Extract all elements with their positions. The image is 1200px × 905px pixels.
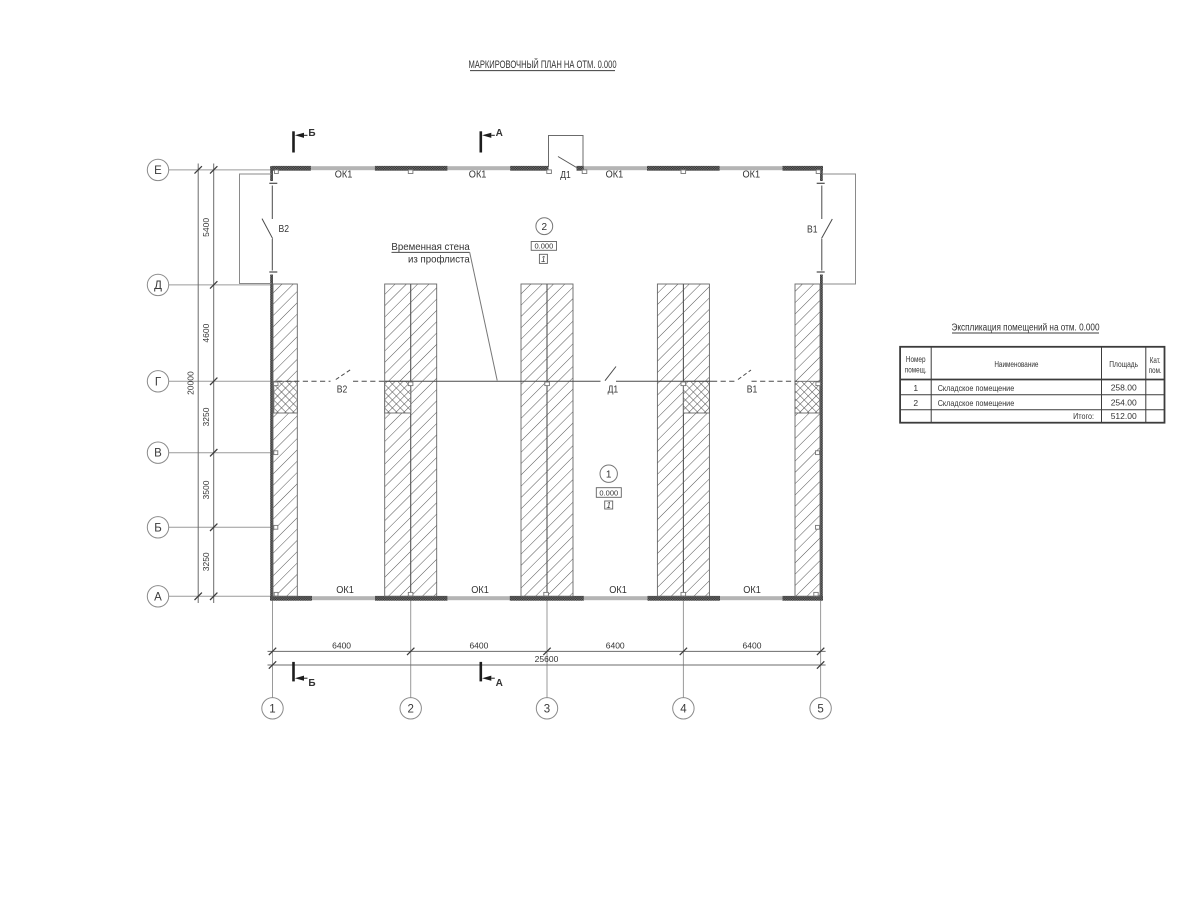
svg-text:А: А: [496, 678, 503, 689]
svg-text:В2: В2: [279, 223, 290, 235]
svg-text:В1: В1: [807, 224, 818, 236]
svg-text:1: 1: [606, 470, 612, 481]
svg-text:Экспликация помещений на отм.: Экспликация помещений на отм. 0.000: [951, 320, 1099, 332]
svg-text:Б: Б: [154, 522, 162, 534]
svg-text:254.00: 254.00: [1111, 398, 1137, 408]
svg-text:А: А: [154, 591, 162, 603]
svg-text:1: 1: [269, 703, 275, 715]
svg-text:В1: В1: [747, 384, 758, 396]
svg-text:Д: Д: [154, 280, 162, 292]
svg-text:Итого:: Итого:: [1073, 412, 1094, 422]
svg-text:А: А: [496, 128, 503, 139]
svg-text:1: 1: [913, 383, 918, 393]
svg-text:Кат.: Кат.: [1150, 356, 1161, 365]
svg-text:Б: Б: [308, 678, 315, 689]
svg-text:МАРКИРОВОЧНЫЙ ПЛАН НА ОТМ. 0.0: МАРКИРОВОЧНЫЙ ПЛАН НА ОТМ. 0.000: [468, 58, 616, 72]
svg-text:3250: 3250: [201, 407, 211, 426]
svg-text:ОК1: ОК1: [609, 584, 627, 595]
svg-text:из профлиста: из профлиста: [408, 253, 470, 265]
svg-text:ОК1: ОК1: [743, 584, 761, 595]
svg-text:3500: 3500: [201, 480, 211, 499]
svg-text:25600: 25600: [535, 654, 559, 664]
svg-text:2: 2: [542, 222, 548, 233]
svg-text:ОК1: ОК1: [469, 169, 487, 180]
svg-text:помещ.: помещ.: [905, 365, 927, 375]
svg-text:4600: 4600: [201, 323, 211, 342]
svg-text:ОК1: ОК1: [335, 169, 353, 180]
svg-text:4: 4: [680, 703, 687, 715]
svg-text:Наименование: Наименование: [994, 359, 1038, 369]
svg-text:ОК1: ОК1: [742, 169, 760, 180]
svg-text:В: В: [154, 448, 162, 460]
svg-text:Д1: Д1: [608, 384, 619, 396]
svg-text:6400: 6400: [606, 640, 625, 650]
svg-text:ОК1: ОК1: [606, 169, 624, 180]
svg-text:512.00: 512.00: [1111, 411, 1137, 421]
svg-text:В2: В2: [337, 384, 348, 396]
svg-text:Д1: Д1: [560, 169, 570, 180]
svg-text:2: 2: [913, 398, 918, 408]
svg-text:1: 1: [541, 255, 545, 264]
svg-text:20000: 20000: [186, 371, 196, 395]
svg-text:5400: 5400: [201, 218, 211, 237]
svg-text:3: 3: [544, 703, 550, 715]
svg-text:6400: 6400: [469, 640, 488, 650]
svg-text:Временная стена: Временная стена: [391, 241, 470, 252]
svg-text:ОК1: ОК1: [471, 584, 489, 595]
svg-text:ОК1: ОК1: [336, 584, 354, 595]
svg-text:Номер: Номер: [906, 354, 926, 364]
svg-text:Складское помещение: Складское помещение: [938, 383, 1015, 393]
svg-text:0.000: 0.000: [599, 488, 618, 497]
svg-text:1: 1: [606, 501, 610, 510]
svg-text:Е: Е: [154, 165, 162, 177]
svg-text:0.000: 0.000: [535, 242, 554, 251]
svg-text:3250: 3250: [201, 552, 211, 571]
svg-text:Б: Б: [308, 128, 315, 139]
svg-text:6400: 6400: [332, 640, 351, 650]
svg-text:Площадь: Площадь: [1109, 359, 1138, 369]
svg-text:Г: Г: [155, 376, 162, 388]
svg-text:6400: 6400: [743, 640, 762, 650]
svg-text:258.00: 258.00: [1111, 383, 1137, 393]
svg-text:Складское помещение: Складское помещение: [938, 398, 1015, 408]
svg-text:2: 2: [407, 703, 413, 715]
svg-text:пом.: пом.: [1149, 366, 1162, 375]
svg-text:5: 5: [817, 703, 823, 715]
